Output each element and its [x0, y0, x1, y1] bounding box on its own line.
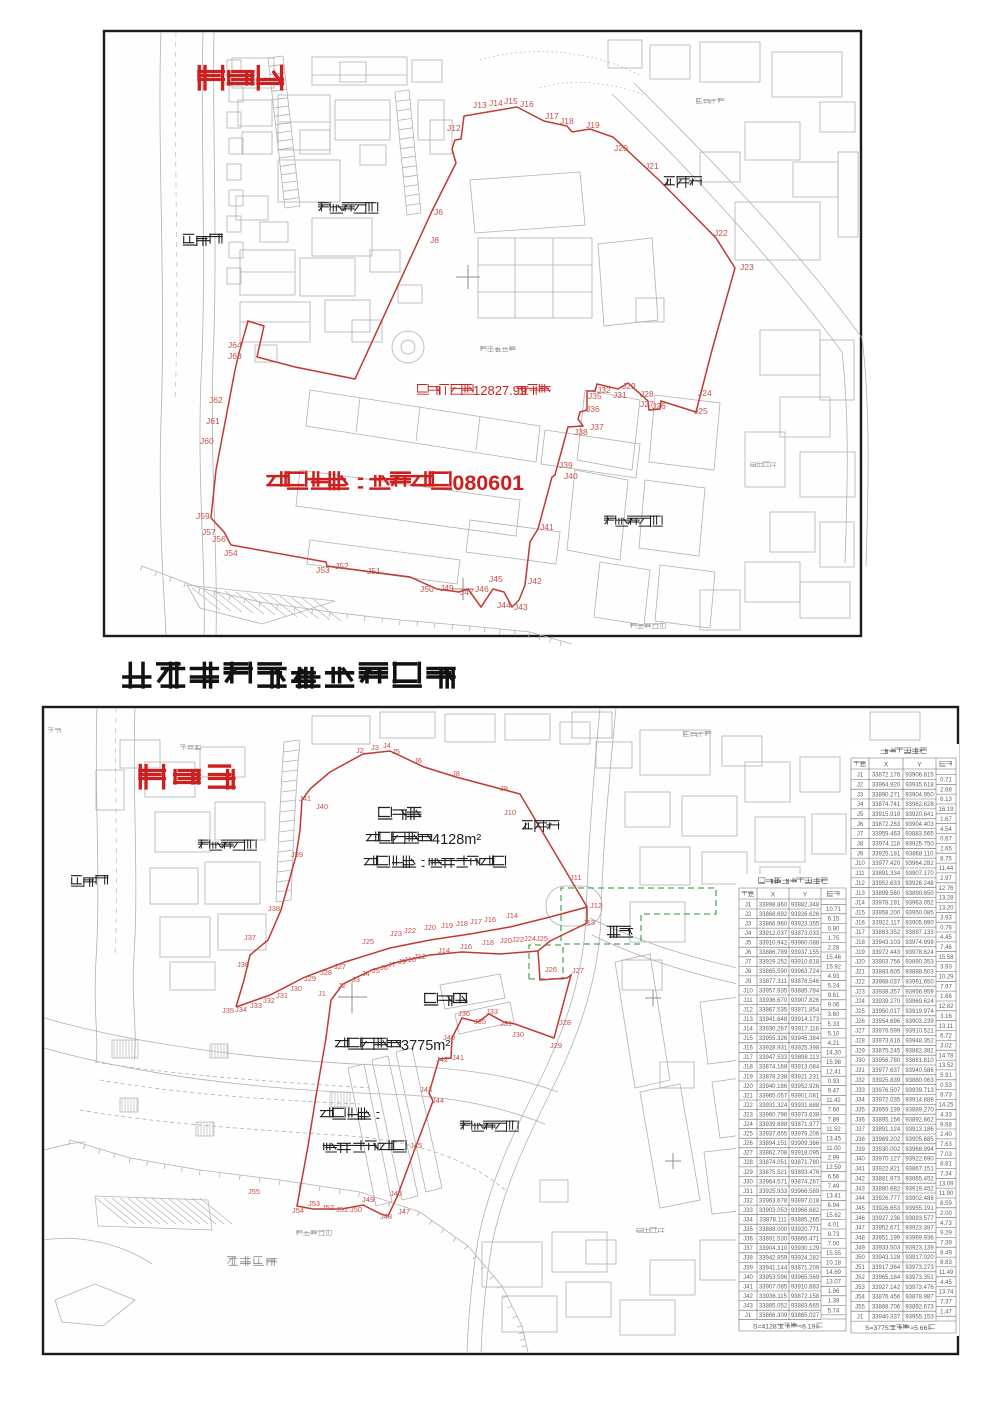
svg-text:J32: J32	[263, 996, 275, 1005]
svg-text:33926.777: 33926.777	[872, 1196, 901, 1202]
svg-text:13.07: 13.07	[826, 1280, 842, 1286]
svg-text:J8: J8	[745, 969, 752, 975]
svg-text:33938.357: 33938.357	[872, 989, 901, 995]
svg-text:J24: J24	[743, 1122, 753, 1128]
svg-text:93867.151: 93867.151	[905, 1167, 934, 1173]
svg-text:J39: J39	[559, 460, 573, 470]
svg-text:14.69: 14.69	[826, 1270, 842, 1276]
svg-text:33878.238: 33878.238	[759, 1074, 788, 1080]
svg-text:93907.826: 93907.826	[791, 998, 820, 1004]
svg-text:93873.033: 93873.033	[791, 931, 820, 937]
svg-text:J4: J4	[362, 969, 370, 978]
svg-text:J29: J29	[550, 1041, 562, 1050]
svg-text:J24: J24	[698, 388, 712, 398]
svg-text:J8: J8	[857, 842, 864, 848]
svg-text:J21: J21	[645, 161, 659, 171]
svg-text:14.25: 14.25	[938, 1103, 954, 1109]
svg-text:33874.051: 33874.051	[759, 1160, 788, 1166]
svg-text:15.58: 15.58	[938, 955, 954, 961]
svg-text:4.54: 4.54	[940, 827, 952, 833]
svg-text:33947.533: 33947.533	[759, 1055, 788, 1061]
svg-text:J29: J29	[304, 974, 316, 983]
svg-text:J16: J16	[520, 99, 534, 109]
svg-text:33874.741: 33874.741	[872, 802, 901, 808]
svg-text:J16: J16	[743, 1046, 753, 1052]
svg-text:J23: J23	[390, 929, 402, 938]
svg-text:J25: J25	[694, 406, 708, 416]
svg-text:J24: J24	[855, 999, 865, 1005]
svg-text:33899.560: 33899.560	[872, 891, 901, 897]
svg-text:93919.974: 93919.974	[905, 1009, 934, 1015]
svg-text:93948.352: 93948.352	[905, 1039, 934, 1045]
svg-text:2.65: 2.65	[940, 847, 952, 853]
svg-text:13.11: 13.11	[939, 1024, 954, 1030]
svg-text:15.55: 15.55	[826, 1251, 842, 1257]
svg-text:J38: J38	[268, 904, 280, 913]
svg-text:J29: J29	[855, 1048, 865, 1054]
svg-text:J30: J30	[512, 1030, 524, 1039]
svg-text:93904.950: 93904.950	[905, 792, 934, 798]
svg-text:J61: J61	[206, 416, 220, 426]
svg-text:J5: J5	[745, 941, 752, 947]
svg-text:12.76: 12.76	[938, 886, 954, 892]
svg-text:J38: J38	[855, 1137, 865, 1143]
svg-text:J51: J51	[855, 1265, 865, 1271]
svg-text:J32: J32	[743, 1198, 753, 1204]
svg-text:J23: J23	[740, 262, 754, 272]
svg-text:J36: J36	[586, 404, 600, 414]
svg-text:11.44: 11.44	[939, 866, 954, 872]
svg-text:J18: J18	[482, 938, 494, 947]
svg-text:93883.665: 93883.665	[791, 1304, 820, 1310]
svg-text:33894.151: 33894.151	[759, 1141, 788, 1147]
svg-text:J8: J8	[452, 769, 460, 778]
svg-text:93882.348: 93882.348	[791, 902, 820, 908]
svg-text:93925.398: 93925.398	[791, 1046, 820, 1052]
svg-text:93924.282: 93924.282	[791, 1256, 820, 1262]
svg-text:33968.037: 33968.037	[872, 979, 901, 985]
svg-text:J22: J22	[855, 979, 865, 985]
svg-text:J54: J54	[224, 548, 238, 558]
svg-text:J39: J39	[855, 1147, 865, 1153]
svg-text:4.21: 4.21	[828, 1041, 840, 1047]
svg-text:J19: J19	[855, 950, 865, 956]
svg-text:3.02: 3.02	[940, 1044, 952, 1050]
svg-text:J52: J52	[855, 1275, 865, 1281]
svg-text:12.41: 12.41	[826, 1070, 842, 1076]
svg-text:93973.273: 93973.273	[905, 1265, 934, 1271]
svg-text:4.93: 4.93	[828, 974, 840, 980]
svg-text:J54: J54	[292, 1206, 304, 1215]
svg-text:12.59: 12.59	[826, 1165, 842, 1171]
svg-text:33965.057: 33965.057	[759, 1093, 788, 1099]
svg-text:93901.081: 93901.081	[791, 1093, 820, 1099]
svg-text:J6: J6	[745, 950, 752, 956]
svg-text:J30: J30	[855, 1058, 865, 1064]
svg-text:J15: J15	[504, 96, 518, 106]
svg-text:J28: J28	[640, 389, 654, 399]
svg-text:J47: J47	[398, 1207, 410, 1216]
svg-text:J34: J34	[235, 1005, 247, 1014]
svg-text:J50: J50	[350, 1205, 362, 1214]
svg-text:93935.618: 93935.618	[905, 782, 934, 788]
svg-text:93955.153: 93955.153	[905, 1314, 934, 1320]
svg-text:5.91: 5.91	[940, 1073, 952, 1079]
svg-text:J27: J27	[334, 962, 346, 971]
svg-text:J27: J27	[572, 966, 584, 975]
svg-text:J23: J23	[855, 989, 865, 995]
svg-text:J1: J1	[857, 773, 864, 779]
svg-text:J23: J23	[743, 1113, 753, 1119]
svg-text:33925.933: 33925.933	[759, 1189, 788, 1195]
svg-text:J27: J27	[743, 1151, 753, 1157]
svg-text:8.83: 8.83	[940, 1260, 952, 1266]
svg-text:J16: J16	[460, 942, 472, 951]
svg-text:J41: J41	[299, 794, 311, 803]
svg-text:33881.973: 33881.973	[872, 1176, 901, 1182]
svg-text:2.99: 2.99	[828, 1156, 840, 1162]
svg-text:33930.002: 33930.002	[872, 1147, 901, 1153]
svg-text:J2: J2	[338, 981, 346, 990]
svg-text:33943.128: 33943.128	[872, 1255, 901, 1261]
svg-text:J17: J17	[470, 917, 482, 926]
svg-text:33872.176: 33872.176	[872, 773, 901, 779]
svg-text:J15: J15	[743, 1036, 753, 1042]
svg-text:J25: J25	[743, 1132, 753, 1138]
svg-text:33942.859: 33942.859	[759, 1256, 788, 1262]
svg-text:J6: J6	[380, 963, 388, 972]
svg-text:11.42: 11.42	[826, 1098, 841, 1104]
svg-text:93966.682: 93966.682	[791, 1208, 820, 1214]
svg-text:7.49: 7.49	[828, 1184, 840, 1190]
svg-text:J12: J12	[855, 881, 865, 887]
svg-text:J42: J42	[855, 1176, 865, 1182]
svg-text:J26: J26	[855, 1019, 865, 1025]
svg-text:J1: J1	[318, 989, 326, 998]
svg-text:33940.337: 33940.337	[872, 1314, 901, 1320]
svg-text:J11: J11	[570, 873, 582, 882]
svg-text:J7: J7	[857, 832, 864, 838]
svg-text:J57: J57	[202, 527, 216, 537]
svg-text:33929.252: 33929.252	[759, 960, 788, 966]
svg-text:33912.037: 33912.037	[759, 931, 788, 937]
svg-text:93973.476: 93973.476	[905, 1285, 934, 1291]
svg-text:33927.236: 33927.236	[872, 1216, 901, 1222]
svg-text:93906.815: 93906.815	[905, 773, 934, 779]
svg-text:J45: J45	[855, 1206, 865, 1212]
svg-text:J18: J18	[560, 116, 574, 126]
svg-text:1.66: 1.66	[940, 994, 952, 1000]
svg-text:33939.270: 33939.270	[872, 999, 901, 1005]
svg-text:33930.267: 33930.267	[759, 1027, 788, 1033]
svg-text:33953.596: 33953.596	[759, 1275, 788, 1281]
svg-text:J22: J22	[512, 935, 524, 944]
svg-text:J33: J33	[743, 1208, 753, 1214]
svg-text:6.94: 6.94	[828, 1203, 840, 1209]
svg-text:J45: J45	[410, 1141, 422, 1150]
svg-text:J43: J43	[743, 1304, 753, 1310]
svg-text:13.45: 13.45	[826, 1136, 842, 1142]
svg-text:J42: J42	[528, 576, 542, 586]
svg-text:33941.648: 33941.648	[759, 1017, 788, 1023]
svg-text:J19: J19	[743, 1074, 753, 1080]
svg-text:J9: J9	[500, 784, 508, 793]
svg-text:93868.110: 93868.110	[906, 851, 935, 857]
svg-text:33868.706: 33868.706	[872, 1305, 901, 1311]
svg-text:93871.209: 93871.209	[791, 1265, 820, 1271]
svg-text:33895.156: 33895.156	[872, 1117, 901, 1123]
svg-text:1.47: 1.47	[940, 1309, 952, 1315]
svg-text:J39: J39	[743, 1265, 753, 1271]
svg-text:33950.017: 33950.017	[872, 1009, 901, 1015]
svg-text:J14: J14	[489, 98, 503, 108]
svg-text:93897.133: 93897.133	[905, 930, 934, 936]
svg-text:33960.796: 33960.796	[759, 1113, 788, 1119]
svg-text:93920.771: 93920.771	[791, 1227, 820, 1233]
svg-text:J38: J38	[574, 427, 588, 437]
svg-text:J36: J36	[237, 960, 249, 969]
svg-text:J35: J35	[222, 1006, 234, 1015]
svg-text:93871.780: 93871.780	[791, 1160, 820, 1166]
svg-text:J54: J54	[855, 1295, 865, 1301]
svg-text:33972.035: 33972.035	[872, 1098, 901, 1104]
svg-text:J14: J14	[438, 946, 450, 955]
svg-text:93914.888: 93914.888	[905, 1098, 934, 1104]
svg-text:J17: J17	[545, 111, 559, 121]
svg-text:J60: J60	[200, 436, 214, 446]
svg-text:J36: J36	[743, 1237, 753, 1243]
svg-text:93923.387: 93923.387	[905, 1226, 934, 1232]
svg-text:93963.052: 93963.052	[905, 901, 934, 907]
svg-text:33933.503: 33933.503	[872, 1245, 901, 1251]
svg-text:93885.784: 93885.784	[791, 988, 820, 994]
svg-text:0.93: 0.93	[828, 1079, 840, 1085]
svg-text:J4: J4	[745, 931, 752, 937]
svg-text:93914.173: 93914.173	[791, 1017, 820, 1023]
svg-text:33925.839: 33925.839	[872, 1078, 901, 1084]
svg-text:J31: J31	[276, 991, 288, 1000]
svg-text:33883.605: 33883.605	[872, 970, 901, 976]
svg-text:93907.170: 93907.170	[905, 871, 934, 877]
svg-text:J1: J1	[745, 902, 752, 908]
svg-text:J50: J50	[420, 584, 434, 594]
svg-text:16.19: 16.19	[938, 807, 954, 813]
svg-text:J9: J9	[857, 851, 864, 857]
svg-text:2.68: 2.68	[940, 787, 952, 793]
svg-text:J33: J33	[486, 1007, 498, 1016]
svg-text:J48: J48	[855, 1236, 865, 1242]
svg-text:J37: J37	[855, 1127, 865, 1133]
svg-text:J59: J59	[196, 511, 210, 521]
svg-text:J22: J22	[714, 228, 728, 238]
svg-text:J21: J21	[855, 970, 865, 976]
svg-text:33931.324: 33931.324	[759, 1103, 788, 1109]
svg-text:93963.724: 93963.724	[791, 969, 820, 975]
svg-text:93878.546: 93878.546	[791, 979, 820, 985]
svg-text:J41: J41	[855, 1167, 865, 1173]
svg-text:5.10: 5.10	[828, 1031, 840, 1037]
svg-text:33973.616: 33973.616	[872, 1039, 901, 1045]
svg-text:93893.577: 93893.577	[905, 1216, 934, 1222]
svg-text:93892.662: 93892.662	[905, 1117, 934, 1123]
svg-text:93890.650: 93890.650	[905, 891, 934, 897]
svg-text:J43: J43	[514, 602, 528, 612]
svg-text:J22: J22	[743, 1103, 753, 1109]
svg-text:33936.670: 33936.670	[759, 998, 788, 1004]
svg-text:J39: J39	[291, 850, 303, 859]
svg-text:J14: J14	[855, 901, 865, 907]
svg-text:7.89: 7.89	[828, 1117, 840, 1123]
svg-text:8.73: 8.73	[940, 1093, 952, 1099]
svg-text:J13: J13	[583, 918, 595, 927]
svg-text:J7: J7	[388, 960, 396, 969]
svg-text:J46: J46	[475, 584, 489, 594]
svg-text:0.76: 0.76	[940, 925, 952, 931]
svg-text:2.97: 2.97	[940, 876, 952, 882]
svg-text:J26: J26	[545, 965, 557, 974]
svg-text:33862.708: 33862.708	[759, 1151, 788, 1157]
svg-text:93905.890: 93905.890	[905, 920, 934, 926]
svg-text:93874.267: 93874.267	[791, 1179, 820, 1185]
svg-text:93909.366: 93909.366	[791, 1141, 820, 1147]
svg-text:J37: J37	[244, 933, 256, 942]
svg-text:33977.637: 33977.637	[872, 1068, 901, 1074]
svg-text:J51: J51	[367, 566, 381, 576]
svg-text:11.49: 11.49	[939, 1270, 954, 1276]
svg-text:J31: J31	[500, 1019, 512, 1028]
svg-text:J3: J3	[352, 975, 360, 984]
svg-text:J8: J8	[430, 235, 439, 245]
svg-text:J42: J42	[436, 1055, 448, 1064]
svg-text:93902.488: 93902.488	[905, 1196, 934, 1202]
svg-text:33964.571: 33964.571	[759, 1179, 788, 1185]
svg-text:J42: J42	[743, 1294, 753, 1300]
svg-text:93890.353: 93890.353	[905, 960, 934, 966]
svg-text:33972.443: 33972.443	[872, 950, 901, 956]
svg-text:J29: J29	[743, 1170, 753, 1176]
svg-text:4.45: 4.45	[940, 935, 952, 941]
svg-text:5.33: 5.33	[828, 1022, 840, 1028]
svg-text:J48: J48	[380, 1212, 392, 1221]
svg-text:33954.696: 33954.696	[872, 1019, 901, 1025]
svg-text:7.00: 7.00	[828, 1241, 840, 1247]
svg-text:33891.334: 33891.334	[872, 871, 901, 877]
svg-text:93885.265: 93885.265	[791, 1218, 820, 1224]
svg-text:J55: J55	[855, 1305, 865, 1311]
svg-text:J38: J38	[743, 1256, 753, 1262]
svg-text:1.38: 1.38	[828, 1299, 840, 1305]
svg-text:33903.053: 33903.053	[759, 1208, 788, 1214]
svg-text:33939.698: 33939.698	[759, 1122, 788, 1128]
svg-text:93922.690: 93922.690	[905, 1157, 934, 1163]
svg-text:5.74: 5.74	[828, 1308, 840, 1314]
svg-text:8.59: 8.59	[940, 1201, 952, 1207]
svg-text:J49: J49	[855, 1245, 865, 1251]
svg-text:33976.599: 33976.599	[872, 1029, 901, 1035]
svg-text:J30: J30	[743, 1179, 753, 1185]
svg-text:93952.926: 93952.926	[791, 1084, 820, 1090]
svg-text:0.71: 0.71	[940, 778, 952, 784]
svg-text:J52: J52	[335, 561, 349, 571]
svg-text:33977.420: 33977.420	[872, 861, 901, 867]
svg-text:33940.186: 33940.186	[759, 1084, 788, 1090]
svg-text:J37: J37	[743, 1246, 753, 1252]
svg-text:7.39: 7.39	[940, 1241, 952, 1247]
svg-text:J34: J34	[855, 1098, 865, 1104]
svg-text:J31: J31	[613, 390, 627, 400]
svg-text:J11: J11	[743, 998, 753, 1004]
svg-text:J40: J40	[564, 471, 578, 481]
svg-text:13.41: 13.41	[826, 1194, 842, 1200]
svg-text:93966.589: 93966.589	[791, 1189, 820, 1195]
svg-text:J10: J10	[504, 808, 516, 817]
svg-text:0.53: 0.53	[940, 1083, 952, 1089]
svg-text:3.16: 3.16	[940, 1014, 952, 1020]
svg-text:33874.168: 33874.168	[759, 1065, 788, 1071]
svg-text:93930.129: 93930.129	[791, 1246, 820, 1252]
svg-text:15.92: 15.92	[826, 965, 842, 971]
svg-text:33958.200: 33958.200	[872, 911, 901, 917]
svg-text:J5: J5	[372, 966, 380, 975]
svg-text:1.96: 1.96	[828, 1289, 840, 1295]
svg-text:J12: J12	[590, 901, 602, 910]
svg-text:J31: J31	[855, 1068, 865, 1074]
svg-text:J9: J9	[745, 979, 752, 985]
svg-text:J40: J40	[855, 1157, 865, 1163]
svg-text:12827.99: 12827.99	[473, 383, 527, 398]
svg-text:93903.239: 93903.239	[905, 1019, 934, 1025]
svg-text:93920.641: 93920.641	[905, 812, 934, 818]
svg-text:8.49: 8.49	[940, 1250, 952, 1256]
svg-text:J20: J20	[614, 143, 628, 153]
svg-text:93919.452: 93919.452	[905, 1186, 934, 1192]
svg-text:J12: J12	[414, 952, 426, 961]
svg-text:J3: J3	[857, 792, 864, 798]
svg-text:J2: J2	[745, 912, 752, 918]
svg-text:J17: J17	[743, 1055, 753, 1061]
svg-text:33863.352: 33863.352	[872, 930, 901, 936]
svg-text:J35: J35	[855, 1108, 865, 1114]
svg-text:7.03: 7.03	[940, 1152, 952, 1158]
svg-text:15.46: 15.46	[826, 955, 842, 961]
svg-text:≈5.66: ≈5.66	[910, 1325, 927, 1332]
svg-text:93973.351: 93973.351	[905, 1275, 934, 1281]
svg-text:J15: J15	[855, 911, 865, 917]
svg-text:3.93: 3.93	[940, 965, 952, 971]
svg-text:33951.199: 33951.199	[872, 1236, 901, 1242]
svg-text:33891.124: 33891.124	[872, 1127, 901, 1133]
svg-text:J64: J64	[228, 340, 242, 350]
svg-text:33904.310: 33904.310	[759, 1246, 788, 1252]
svg-text:33915.919: 33915.919	[872, 812, 901, 818]
svg-text:7.37: 7.37	[940, 1300, 952, 1306]
svg-text:93969.936: 93969.936	[905, 1236, 934, 1242]
svg-text:33917.364: 33917.364	[872, 1265, 901, 1271]
svg-text:J41: J41	[540, 522, 554, 532]
svg-text:14.30: 14.30	[826, 1050, 842, 1056]
svg-text:J13: J13	[743, 1017, 753, 1023]
svg-text:93897.018: 93897.018	[791, 1198, 820, 1204]
svg-text:93961.650: 93961.650	[905, 979, 934, 985]
svg-text:J51: J51	[336, 1205, 348, 1214]
svg-text:J44: J44	[497, 600, 511, 610]
svg-text:9.68: 9.68	[940, 1122, 952, 1128]
svg-text:J22: J22	[404, 926, 416, 935]
svg-text:33936.115: 33936.115	[759, 1294, 788, 1300]
svg-text:33978.191: 33978.191	[872, 901, 901, 907]
svg-text:J6: J6	[434, 207, 443, 217]
svg-text:9.47: 9.47	[828, 1089, 840, 1095]
